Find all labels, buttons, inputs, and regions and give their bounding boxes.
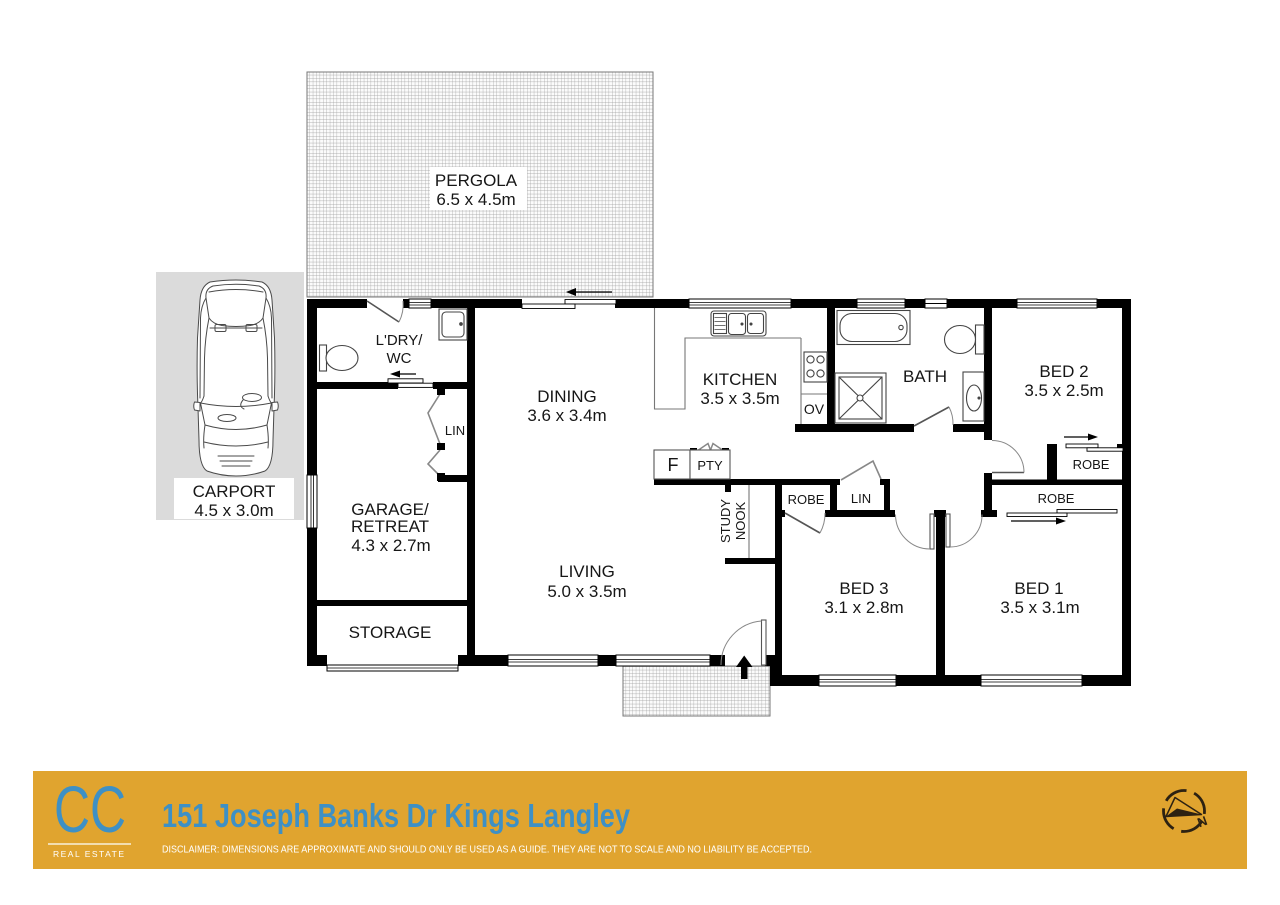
- svg-text:CC: CC: [54, 772, 126, 846]
- svg-text:151 Joseph Banks Dr Kings Lang: 151 Joseph Banks Dr Kings Langley: [162, 797, 631, 834]
- svg-text:ROBE: ROBE: [1038, 491, 1075, 506]
- svg-text:LIN: LIN: [851, 491, 871, 506]
- svg-text:3.1 x 2.8m: 3.1 x 2.8m: [824, 598, 903, 617]
- svg-text:F: F: [668, 455, 679, 475]
- svg-text:LIN: LIN: [445, 423, 465, 438]
- svg-text:PERGOLA: PERGOLA: [435, 171, 518, 190]
- svg-text:BED 1: BED 1: [1014, 579, 1063, 598]
- svg-text:6.5 x 4.5m: 6.5 x 4.5m: [436, 190, 515, 209]
- svg-text:RETREAT: RETREAT: [351, 517, 429, 536]
- svg-text:5.0 x 3.5m: 5.0 x 3.5m: [547, 582, 626, 601]
- svg-text:ROBE: ROBE: [1073, 457, 1110, 472]
- svg-text:NOOK: NOOK: [733, 502, 748, 541]
- svg-text:L'DRY/: L'DRY/: [376, 332, 424, 349]
- svg-text:BED 3: BED 3: [839, 579, 888, 598]
- svg-text:3.5 x 2.5m: 3.5 x 2.5m: [1024, 381, 1103, 400]
- svg-text:3.5 x 3.5m: 3.5 x 3.5m: [700, 389, 779, 408]
- svg-text:WC: WC: [387, 350, 412, 367]
- svg-text:CARPORT: CARPORT: [193, 482, 276, 501]
- svg-text:3.5 x 3.1m: 3.5 x 3.1m: [1000, 598, 1079, 617]
- svg-text:ROBE: ROBE: [788, 492, 825, 507]
- svg-text:4.5 x 3.0m: 4.5 x 3.0m: [194, 501, 273, 520]
- svg-text:OV: OV: [804, 401, 825, 417]
- svg-text:4.3 x 2.7m: 4.3 x 2.7m: [351, 536, 430, 555]
- svg-text:LIVING: LIVING: [559, 562, 615, 581]
- svg-text:BATH: BATH: [903, 367, 947, 386]
- svg-text:DINING: DINING: [537, 387, 597, 406]
- svg-text:3.6 x 3.4m: 3.6 x 3.4m: [527, 406, 606, 425]
- svg-text:DISCLAIMER: DIMENSIONS ARE APP: DISCLAIMER: DIMENSIONS ARE APPROXIMATE A…: [162, 844, 812, 856]
- svg-text:BED 2: BED 2: [1039, 362, 1088, 381]
- svg-text:KITCHEN: KITCHEN: [703, 370, 778, 389]
- svg-text:PTY: PTY: [697, 458, 723, 473]
- svg-text:STUDY: STUDY: [718, 499, 733, 543]
- svg-text:REAL ESTATE: REAL ESTATE: [53, 849, 127, 859]
- svg-text:STORAGE: STORAGE: [349, 623, 432, 642]
